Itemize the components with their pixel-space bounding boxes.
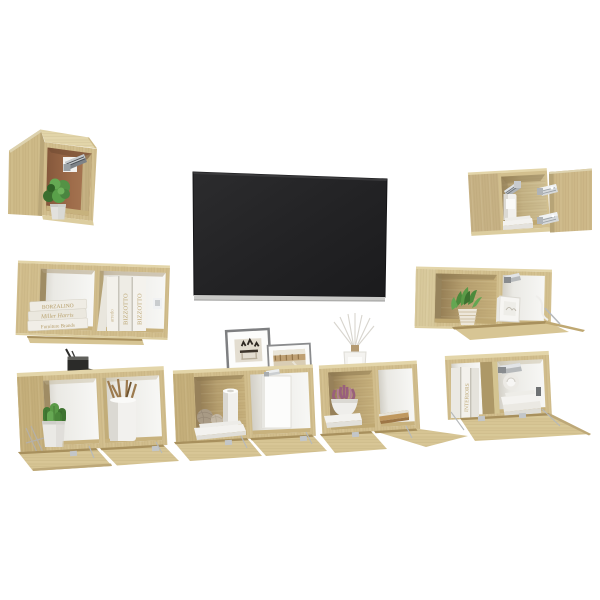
svg-text:arredo: arredo — [111, 309, 116, 322]
svg-text:BIZZOTTO: BIZZOTTO — [137, 293, 144, 325]
svg-text:BIZZOTTO: BIZZOTTO — [123, 293, 130, 325]
svg-text:INTERIORS: INTERIORS — [464, 383, 471, 412]
